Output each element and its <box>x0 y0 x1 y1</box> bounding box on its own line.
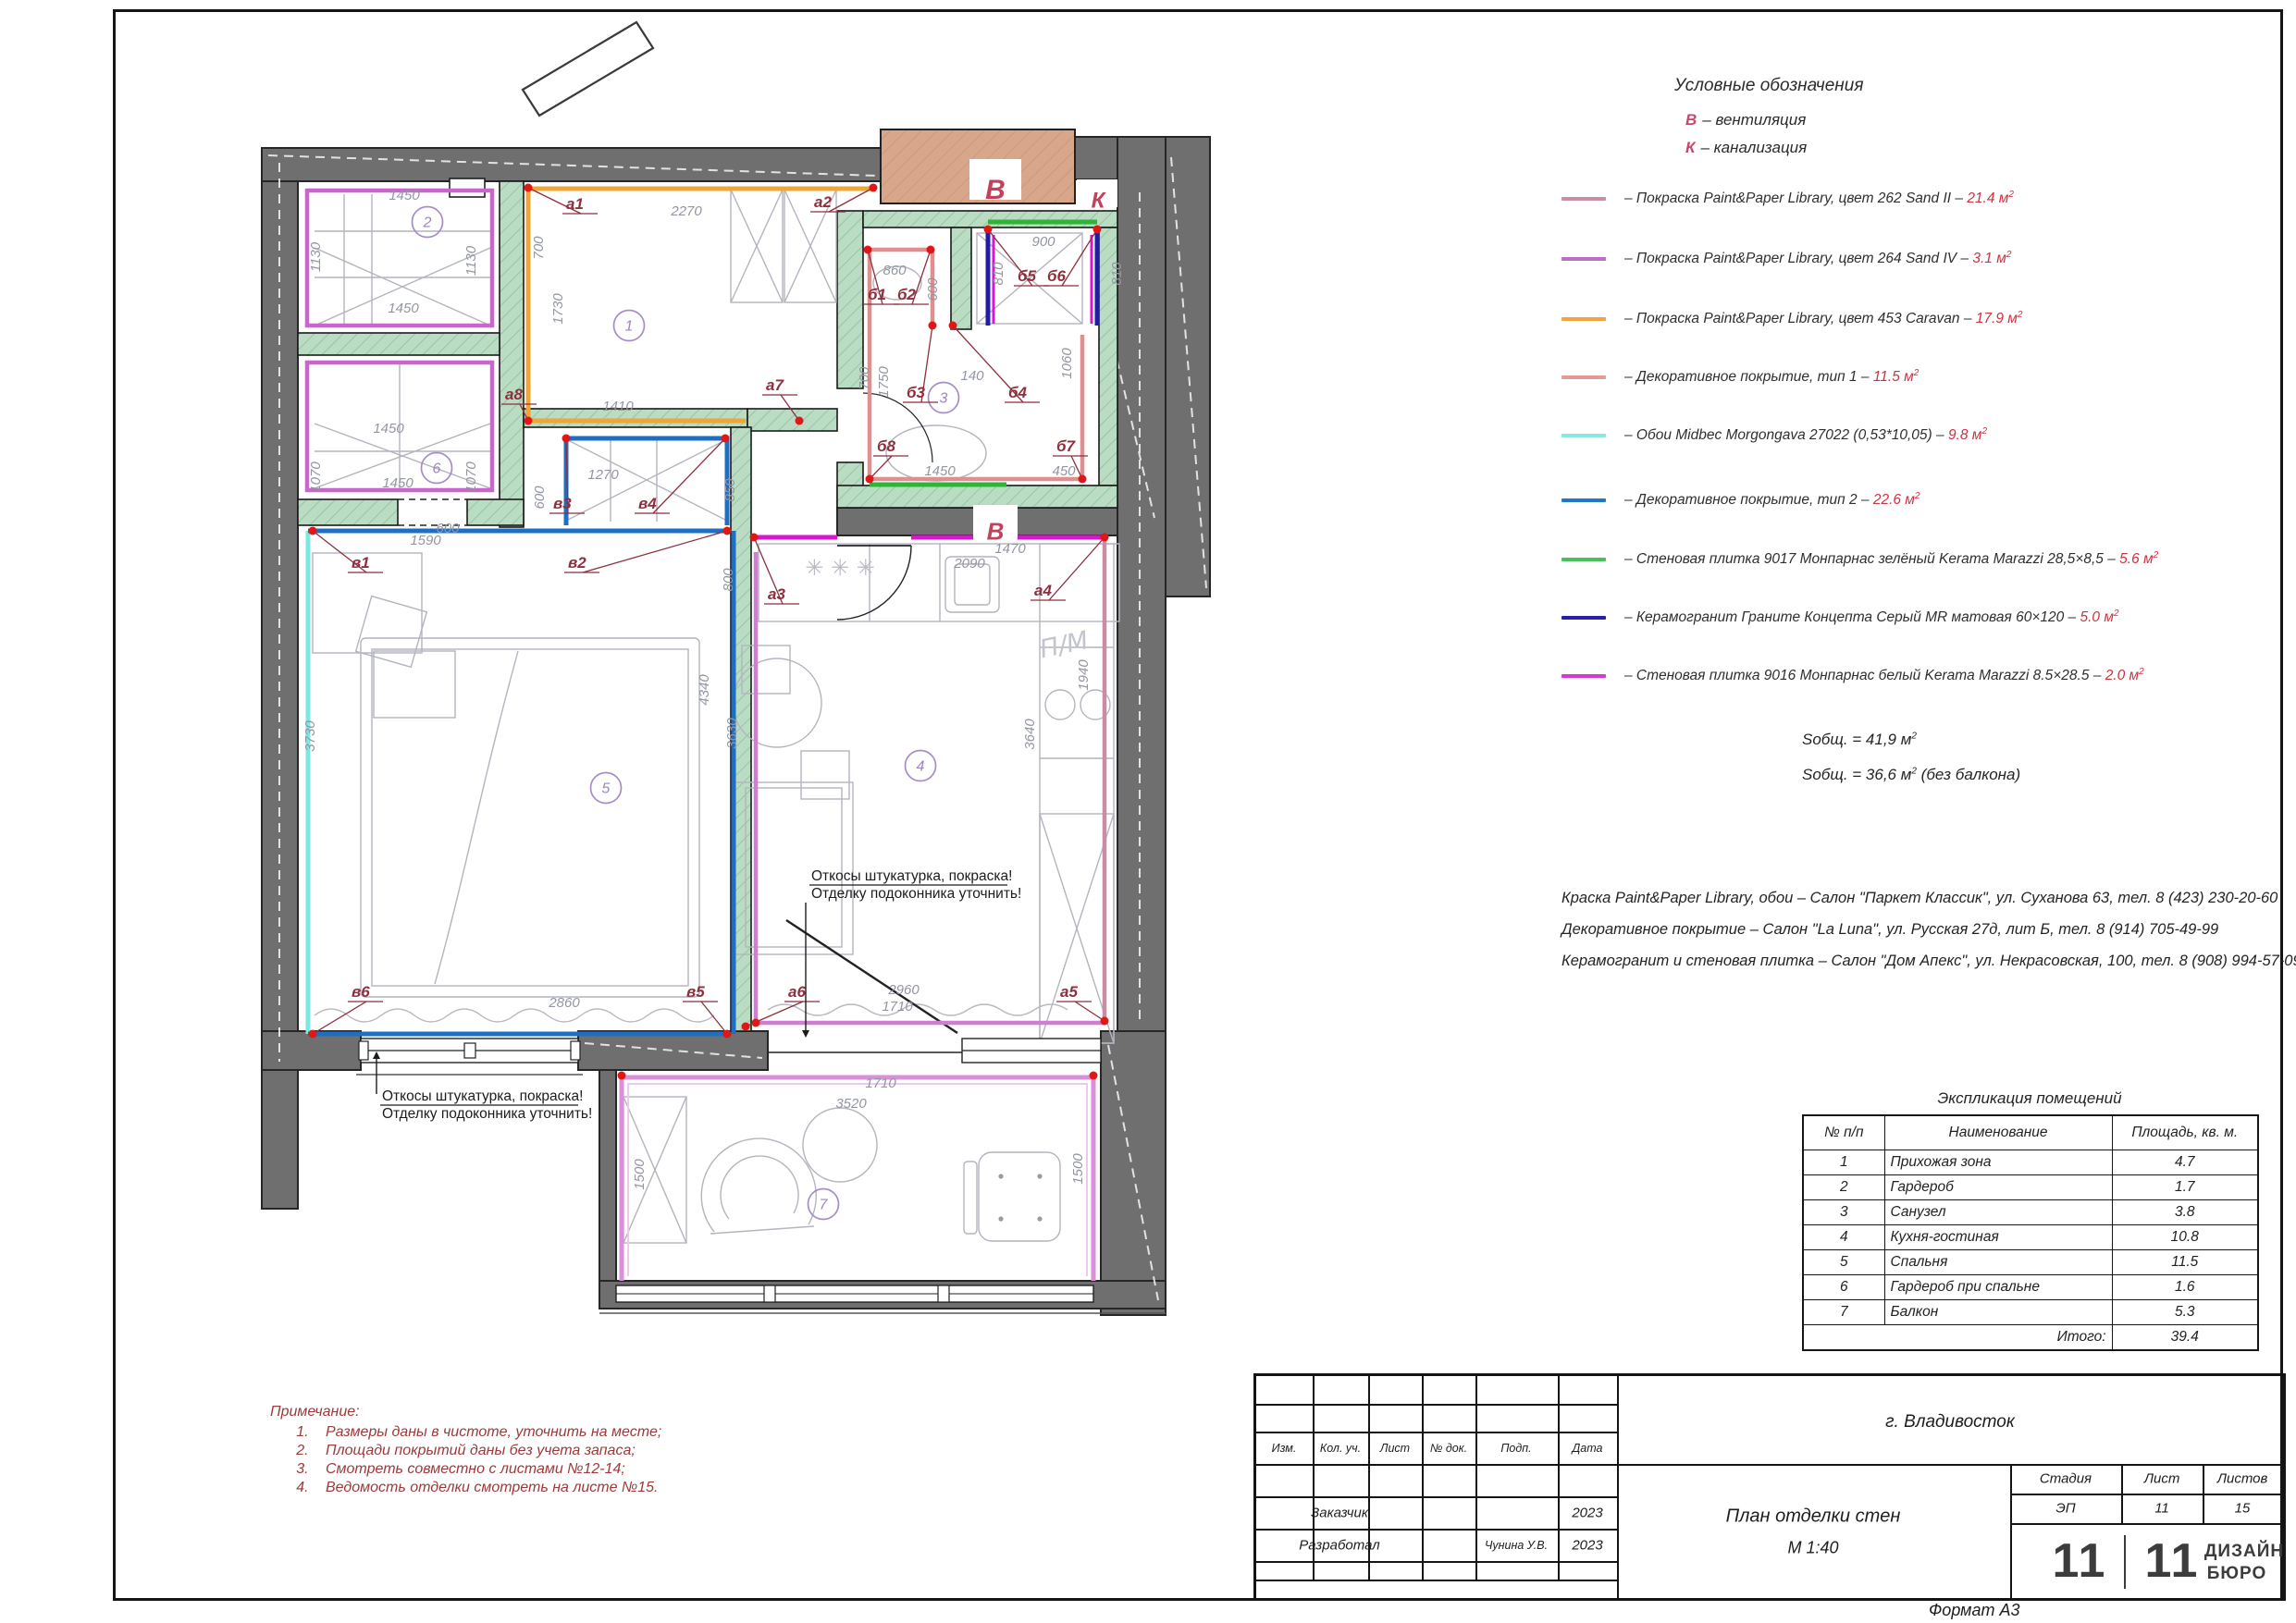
vent-text: – вентиляция <box>1702 111 1806 129</box>
row-name: Гардероб при спальне <box>1884 1275 2112 1300</box>
svg-text:Откосы штукатурка, покраска!: Откосы штукатурка, покраска! <box>382 1088 583 1104</box>
svg-text:в2: в2 <box>568 554 586 572</box>
svg-text:б3: б3 <box>907 384 926 401</box>
row-name: Гардероб <box>1884 1175 2112 1200</box>
svg-text:700: 700 <box>857 366 872 390</box>
svg-text:б7: б7 <box>1056 437 1077 455</box>
svg-text:900: 900 <box>1031 234 1055 250</box>
tb-city: г. Владивосток <box>1885 1412 2015 1432</box>
area-total: Sобщ. = 41,9 м2 <box>1802 731 1917 749</box>
svg-text:1500: 1500 <box>632 1159 648 1190</box>
total-label: Итого: <box>1803 1325 2112 1351</box>
svg-text:1940: 1940 <box>1076 659 1092 691</box>
plan-texts: ✳ ✳ ✳П/М <box>805 555 1091 664</box>
legend-item: – Декоративное покрытие, тип 1 – 11.5 м2 <box>1562 368 2292 387</box>
svg-text:2960: 2960 <box>887 982 920 998</box>
col-area: Площадь, кв. м. <box>2112 1115 2258 1150</box>
row-num: 5 <box>1803 1250 1884 1275</box>
legend-vent: В– вентиляция <box>1685 111 1806 129</box>
svg-text:К: К <box>1092 189 1107 214</box>
tb-customer: Заказчик <box>1311 1506 1368 1521</box>
svg-text:1450: 1450 <box>382 475 414 491</box>
legend-item-text: – Керамогранит Граните Концепта Серый MR… <box>1624 609 2119 626</box>
legend-swatch <box>1562 616 1606 620</box>
svg-text:1710: 1710 <box>865 1076 896 1091</box>
legend-item-text: – Стеновая плитка 9017 Монпарнас зелёный… <box>1624 550 2158 568</box>
svg-text:а1: а1 <box>566 195 584 213</box>
table-row: 1Прихожая зона4.7 <box>1803 1150 2258 1175</box>
finish-caravan <box>528 189 873 421</box>
svg-text:б8: б8 <box>877 437 896 455</box>
svg-text:1450: 1450 <box>389 188 420 203</box>
tb-stage: ЭП <box>2055 1501 2075 1517</box>
row-name: Кухня-гостиная <box>1884 1225 2112 1250</box>
legend-item: – Керамогранит Граните Концепта Серый MR… <box>1562 609 2292 627</box>
svg-text:Отделку подоконника уточнить!: Отделку подоконника уточнить! <box>811 886 1021 902</box>
svg-text:Отделку подоконника уточнить!: Отделку подоконника уточнить! <box>382 1106 592 1122</box>
svg-text:800: 800 <box>721 568 736 592</box>
area-no-balcony: Sобщ. = 36,6 м2 (без балкона) <box>1802 766 2020 784</box>
table-row: 4Кухня-гостиная10.8 <box>1803 1225 2258 1250</box>
svg-text:1450: 1450 <box>373 421 404 436</box>
svg-text:600: 600 <box>532 486 548 510</box>
legend-swatch <box>1562 434 1606 437</box>
svg-text:4340: 4340 <box>697 674 712 706</box>
legend-item-text: – Декоративное покрытие, тип 2 – 22.6 м2 <box>1624 491 1920 509</box>
tb-doc-title: План отделки стен <box>1726 1506 1901 1528</box>
legend-item-area: 5.6 м2 <box>2119 551 2158 567</box>
legend-item-text: – Декоративное покрытие, тип 1 – 11.5 м2 <box>1624 368 1919 386</box>
tb-sheet-label: Лист <box>2144 1471 2180 1487</box>
row-area: 1.6 <box>2112 1275 2258 1300</box>
svg-text:в3: в3 <box>553 495 572 512</box>
legend-item-area: 5.0 м2 <box>2080 609 2119 625</box>
table-row: 6Гардероб при спальне1.6 <box>1803 1275 2258 1300</box>
svg-text:1070: 1070 <box>308 461 324 493</box>
explication-table: № п/п Наименование Площадь, кв. м. 1Прих… <box>1802 1114 2259 1351</box>
tb-izm: Изм. <box>1272 1442 1297 1455</box>
svg-text:1450: 1450 <box>388 301 419 316</box>
svg-text:1590: 1590 <box>410 533 441 548</box>
svg-text:1730: 1730 <box>550 293 566 325</box>
logo-11-right: 11 <box>2145 1533 2200 1589</box>
svg-text:6: 6 <box>433 461 441 477</box>
legend-item: – Покраска Paint&Paper Library, цвет 262… <box>1562 190 2292 208</box>
tb-doc-scale: М 1:40 <box>1787 1539 1838 1558</box>
legend-item: – Покраска Paint&Paper Library, цвет 264… <box>1562 250 2292 268</box>
contact-tile: Керамогранит и стеновая плитка – Салон "… <box>1562 953 2296 970</box>
notes-block: Примечание: Размеры даны в чистоте, уточ… <box>270 1404 788 1498</box>
legend-swatch <box>1562 257 1606 261</box>
svg-text:1130: 1130 <box>463 245 479 276</box>
svg-text:а3: а3 <box>768 585 785 603</box>
sewer-letter: К <box>1685 139 1695 156</box>
legend-item: – Декоративное покрытие, тип 2 – 22.6 м2 <box>1562 491 2292 510</box>
table-row: 5Спальня11.5 <box>1803 1250 2258 1275</box>
legend-item-area: 22.6 м2 <box>1873 492 1920 508</box>
svg-text:1410: 1410 <box>602 399 634 414</box>
note-item: Площади покрытий даны без учета запаса; <box>313 1443 788 1459</box>
tb-developer: Разработал <box>1299 1538 1379 1554</box>
row-num: 2 <box>1803 1175 1884 1200</box>
legend-item-text: – Покраска Paint&Paper Library, цвет 264… <box>1624 250 2011 267</box>
svg-text:3630: 3630 <box>724 718 740 749</box>
tb-ndok: № док. <box>1430 1442 1467 1455</box>
contact-decor: Декоративное покрытие – Салон "La Luna",… <box>1562 921 2218 939</box>
contact-paint: Краска Paint&Paper Library, обои – Салон… <box>1562 890 2277 907</box>
svg-text:1270: 1270 <box>587 467 619 483</box>
tb-year1: 2023 <box>1572 1506 1602 1521</box>
format-label: Формат А3 <box>1929 1601 2020 1620</box>
legend-item-area: 2.0 м2 <box>2105 668 2144 683</box>
svg-text:а4: а4 <box>1034 582 1052 599</box>
legend-sewer: К– канализация <box>1685 139 1807 157</box>
svg-text:б5: б5 <box>1018 267 1037 285</box>
legend-title: Условные обозначения <box>1674 76 1863 96</box>
note-item: Размеры даны в чистоте, уточнить на мест… <box>313 1424 788 1441</box>
svg-text:1450: 1450 <box>924 463 956 479</box>
svg-text:а2: а2 <box>814 193 832 211</box>
row-area: 5.3 <box>2112 1300 2258 1325</box>
table-row: 3Санузел3.8 <box>1803 1200 2258 1225</box>
notes-list: Размеры даны в чистоте, уточнить на мест… <box>270 1424 788 1496</box>
row-num: 6 <box>1803 1275 1884 1300</box>
legend-item: – Обои Midbec Morgongava 27022 (0,53*10,… <box>1562 426 2292 445</box>
svg-text:в1: в1 <box>352 554 370 572</box>
svg-text:✳ ✳ ✳: ✳ ✳ ✳ <box>805 555 875 581</box>
logo-word-buro: БЮРО <box>2207 1564 2266 1584</box>
note-item: Ведомость отделки смотреть на листе №15. <box>313 1480 788 1496</box>
table-row: 7Балкон5.3 <box>1803 1300 2258 1325</box>
svg-text:б2: б2 <box>897 286 917 303</box>
vent-letter: В <box>1685 111 1697 129</box>
col-num: № п/п <box>1803 1115 1884 1150</box>
tb-list: Лист <box>1380 1442 1410 1455</box>
legend-item-area: 21.4 м2 <box>1967 191 2014 206</box>
svg-text:б4: б4 <box>1008 384 1028 401</box>
sheet: { "legend": { "title": "Условные обознач… <box>0 0 2296 1623</box>
svg-text:а8: а8 <box>505 386 523 403</box>
row-name: Балкон <box>1884 1300 2112 1325</box>
row-num: 1 <box>1803 1150 1884 1175</box>
sewer-text: – канализация <box>1700 139 1807 156</box>
total-value: 39.4 <box>2112 1325 2258 1351</box>
svg-text:3520: 3520 <box>835 1096 867 1112</box>
tb-sheet: 11 <box>2154 1501 2169 1517</box>
legend-item-text: – Покраска Paint&Paper Library, цвет 453… <box>1624 310 2022 327</box>
svg-text:а5: а5 <box>1060 983 1078 1001</box>
svg-text:В: В <box>985 175 1006 205</box>
svg-text:2270: 2270 <box>670 203 702 219</box>
legend-swatch <box>1562 674 1606 678</box>
legend-swatch <box>1562 197 1606 201</box>
row-area: 11.5 <box>2112 1250 2258 1275</box>
svg-text:810: 810 <box>1109 262 1125 286</box>
svg-text:В: В <box>987 517 1005 545</box>
threshold <box>450 178 485 197</box>
svg-text:2090: 2090 <box>953 556 985 572</box>
tb-podp: Подп. <box>1500 1442 1531 1455</box>
svg-text:140: 140 <box>960 368 984 384</box>
svg-text:а6: а6 <box>788 983 806 1001</box>
row-area: 1.7 <box>2112 1175 2258 1200</box>
svg-text:а7: а7 <box>766 376 784 394</box>
legend-item-area: 11.5 м2 <box>1873 369 1920 385</box>
row-num: 7 <box>1803 1300 1884 1325</box>
svg-text:1070: 1070 <box>463 461 479 493</box>
notes-title: Примечание: <box>270 1404 788 1420</box>
legend-item: – Стеновая плитка 9016 Монпарнас белый K… <box>1562 667 2292 685</box>
svg-text:810: 810 <box>991 262 1006 286</box>
svg-text:4: 4 <box>917 759 925 775</box>
title-block: Изм. Кол. уч. Лист № док. Подп. Дата Зак… <box>1253 1373 2286 1601</box>
svg-text:3730: 3730 <box>302 720 318 752</box>
legend-item-area: 3.1 м2 <box>1972 251 2011 266</box>
tb-data: Дата <box>1573 1442 1603 1455</box>
row-name: Спальня <box>1884 1250 2112 1275</box>
svg-text:450: 450 <box>1052 463 1076 479</box>
svg-text:б1: б1 <box>868 286 886 303</box>
svg-text:1710: 1710 <box>882 999 913 1014</box>
legend-swatch <box>1562 317 1606 321</box>
svg-text:7: 7 <box>820 1198 829 1213</box>
legend-swatch <box>1562 375 1606 379</box>
chair-dots <box>998 1174 1042 1221</box>
svg-text:1: 1 <box>625 319 634 335</box>
tb-sheets: 15 <box>2235 1501 2251 1517</box>
legend-item-area: 9.8 м2 <box>1948 427 1987 443</box>
tb-developer-name: Чунина У.В. <box>1485 1539 1548 1552</box>
col-name: Наименование <box>1884 1115 2112 1150</box>
row-area: 4.7 <box>2112 1150 2258 1175</box>
svg-text:860: 860 <box>883 263 907 278</box>
svg-text:в5: в5 <box>686 983 705 1001</box>
logo-divider <box>2124 1535 2126 1589</box>
legend-swatch <box>1562 498 1606 502</box>
legend-swatch <box>1562 558 1606 561</box>
svg-text:1500: 1500 <box>1070 1153 1086 1185</box>
entrance-door-leaf <box>523 22 653 116</box>
legend-item-text: – Стеновая плитка 9016 Монпарнас белый K… <box>1624 667 2144 684</box>
row-name: Прихожая зона <box>1884 1150 2112 1175</box>
svg-text:600: 600 <box>925 277 941 301</box>
logo-11-left: 11 <box>2053 1533 2107 1589</box>
svg-text:3: 3 <box>940 391 948 407</box>
svg-text:2860: 2860 <box>548 995 580 1011</box>
svg-text:1750: 1750 <box>876 366 892 398</box>
svg-text:П/М: П/М <box>1037 626 1091 664</box>
svg-text:2: 2 <box>423 215 432 231</box>
svg-text:Откосы штукатурка, покраска!: Откосы штукатурка, покраска! <box>811 868 1012 884</box>
legend-item: – Стеновая плитка 9017 Монпарнас зелёный… <box>1562 550 2292 569</box>
note-item: Смотреть совместно с листами №12-14; <box>313 1461 788 1478</box>
row-area: 10.8 <box>2112 1225 2258 1250</box>
svg-text:1060: 1060 <box>1059 348 1075 379</box>
svg-text:1130: 1130 <box>308 241 324 272</box>
legend-item-area: 17.9 м2 <box>1976 311 2023 326</box>
row-num: 4 <box>1803 1225 1884 1250</box>
explication-title: Экспликация помещений <box>1802 1089 2257 1108</box>
tb-koluch: Кол. уч. <box>1320 1442 1361 1455</box>
svg-text:в4: в4 <box>638 495 657 512</box>
svg-text:700: 700 <box>531 236 547 260</box>
row-name: Санузел <box>1884 1200 2112 1225</box>
tb-sheets-label: Листов <box>2217 1471 2268 1487</box>
legend-item-text: – Покраска Paint&Paper Library, цвет 262… <box>1624 190 2014 207</box>
table-row: 2Гардероб1.7 <box>1803 1175 2258 1200</box>
svg-text:в6: в6 <box>352 983 370 1001</box>
legend-item-text: – Обои Midbec Morgongava 27022 (0,53*10,… <box>1624 426 1987 444</box>
svg-text:5: 5 <box>602 781 611 797</box>
svg-text:850: 850 <box>722 478 738 502</box>
row-area: 3.8 <box>2112 1200 2258 1225</box>
total-row: Итого: 39.4 <box>1803 1325 2258 1351</box>
svg-text:б6: б6 <box>1047 267 1067 285</box>
tb-year2: 2023 <box>1572 1538 1602 1554</box>
tb-stage-label: Стадия <box>2040 1471 2092 1487</box>
row-num: 3 <box>1803 1200 1884 1225</box>
logo-word-design: ДИЗАЙН <box>2204 1542 2284 1562</box>
svg-text:3640: 3640 <box>1022 719 1038 750</box>
legend-item: – Покраска Paint&Paper Library, цвет 453… <box>1562 310 2292 328</box>
